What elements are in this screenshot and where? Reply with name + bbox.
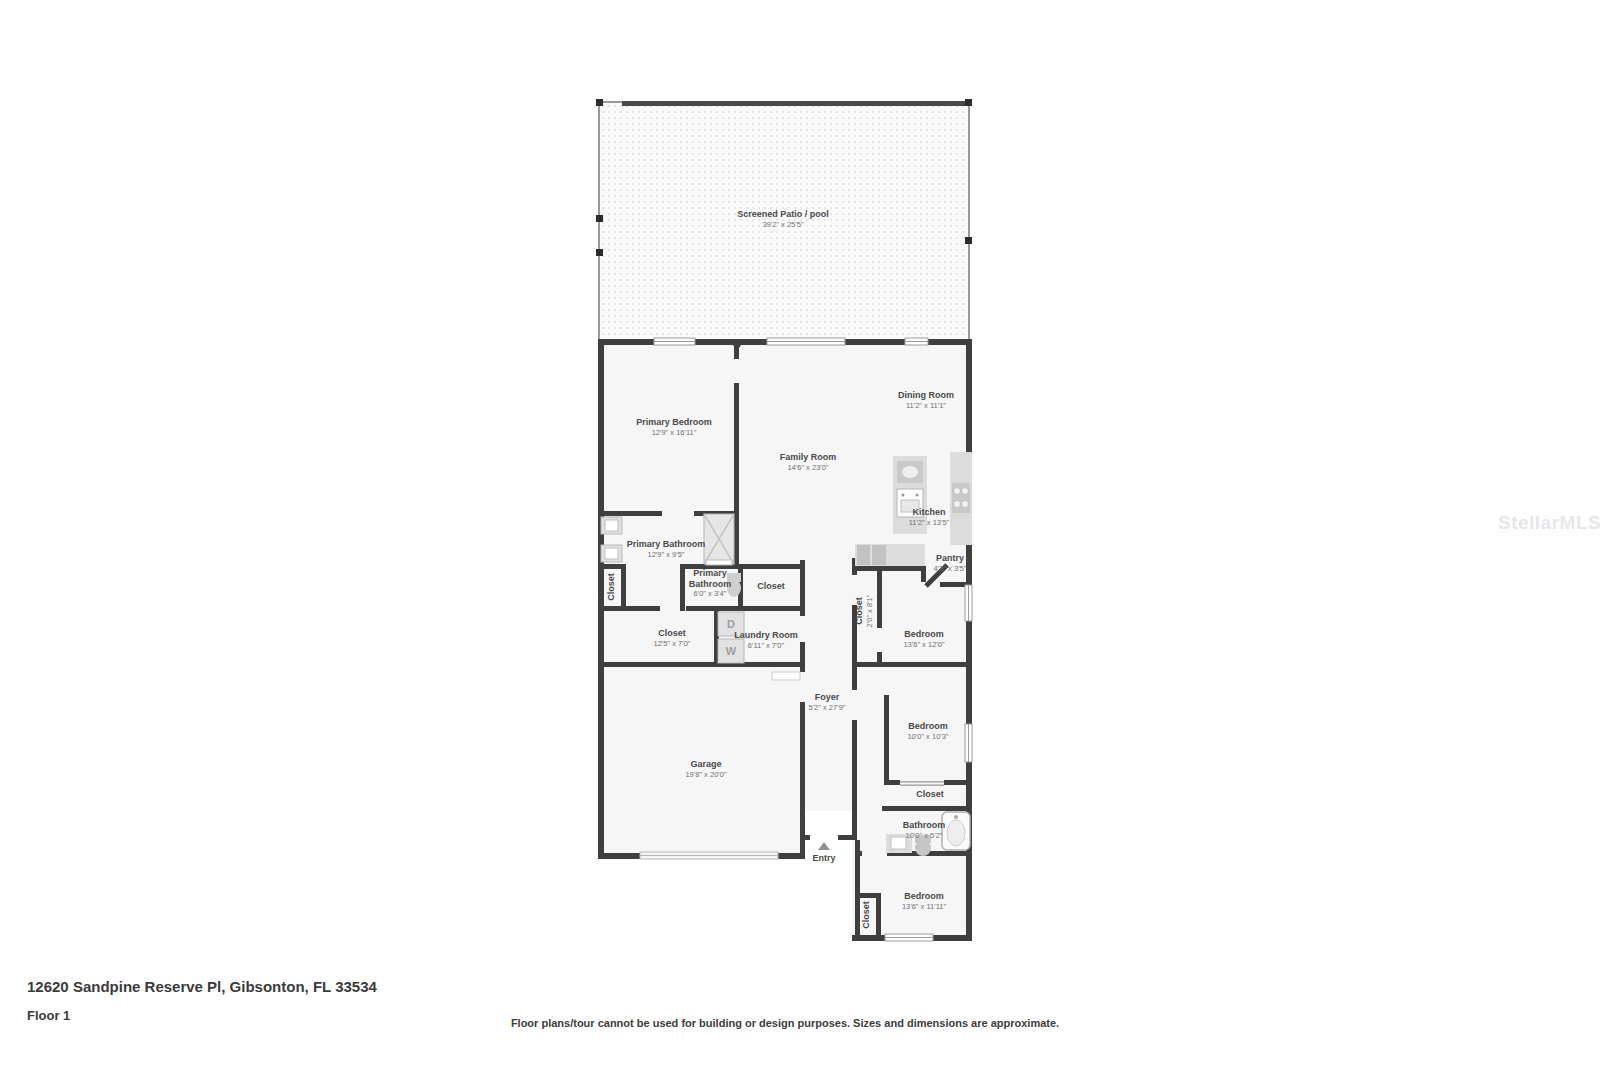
room-label-kitchen: Kitchen 11'2" x 13'5": [909, 507, 950, 527]
shower-icon: [704, 514, 734, 565]
window: [885, 934, 933, 941]
room-label-bedroom-2: Bedroom 10'0" x 10'3": [907, 721, 948, 741]
refrigerator-icon: [855, 544, 925, 566]
room-label-garage: Garage 19'8" x 20'0": [685, 759, 726, 779]
room-label-bedroom-3-closet: Closet: [861, 901, 872, 929]
room-label-family-room: Family Room 14'6" x 23'0": [780, 452, 837, 472]
room-label-bathroom: Bathroom 10'0" x 5'2": [903, 820, 946, 840]
vanity-sink-icon: [601, 545, 622, 562]
entry-arrow-icon: [818, 842, 830, 850]
dryer-letter: D: [727, 618, 735, 630]
sliding-door: [767, 338, 845, 345]
vanity-sink-icon: [601, 517, 622, 534]
room-label-mini-closet: Closet: [606, 573, 617, 601]
window: [965, 724, 972, 762]
floor-number-label: Floor 1: [27, 1008, 70, 1023]
room-label-pantry: Pantry 4'3" x 3'5": [934, 553, 967, 573]
window: [965, 585, 972, 621]
room-label-screened-patio: Screened Patio / pool 39'2" x 25'5": [737, 209, 829, 229]
floor-plan-page: D W: [0, 0, 1600, 1066]
window: [905, 338, 928, 345]
entry-label: Entry: [812, 853, 835, 864]
disclaimer-text: Floor plans/tour cannot be used for buil…: [511, 1017, 1059, 1029]
room-label-bedroom-3: Bedroom 13'6" x 11'11": [902, 891, 946, 911]
room-label-primary-bathroom: Primary Bathroom 12'9" x 9'5": [627, 539, 706, 559]
room-label-water-closet: Primary Bathroom 6'0" x 3'4": [683, 568, 737, 599]
open-door-leaf: [772, 672, 800, 680]
bathtub-icon: [942, 812, 970, 850]
closet-sliding-door: [900, 781, 944, 783]
room-label-foyer: Foyer 5'2" x 27'9": [809, 692, 846, 712]
room-label-walkin-closet: Closet 12'5" x 7'0": [654, 628, 691, 648]
room-label-laundry-room: Laundry Room 6'11" x 7'0": [734, 630, 798, 650]
room-label-bedroom-2-closet: Closet: [916, 789, 944, 800]
room-label-closet-strip: Closet 2'0" x 8'1": [854, 595, 874, 628]
room-label-bedroom-1: Bedroom 13'6" x 12'0": [903, 629, 944, 649]
room-label-hall-closet2: Closet: [757, 581, 785, 592]
stellar-mls-watermark: StellarMLS: [1498, 512, 1600, 534]
property-address: 12620 Sandpine Reserve Pl, Gibsonton, FL…: [27, 978, 377, 995]
cooktop-icon: [950, 452, 972, 545]
closet-sliding-door: [900, 784, 944, 786]
window: [654, 338, 695, 345]
floor-plan-drawing: D W: [0, 0, 1600, 1066]
room-label-primary-bedroom: Primary Bedroom 12'9" x 16'11": [636, 417, 712, 437]
room-label-dining-room: Dining Room 11'2" x 11'1": [898, 390, 954, 410]
garage-door: [640, 852, 778, 859]
